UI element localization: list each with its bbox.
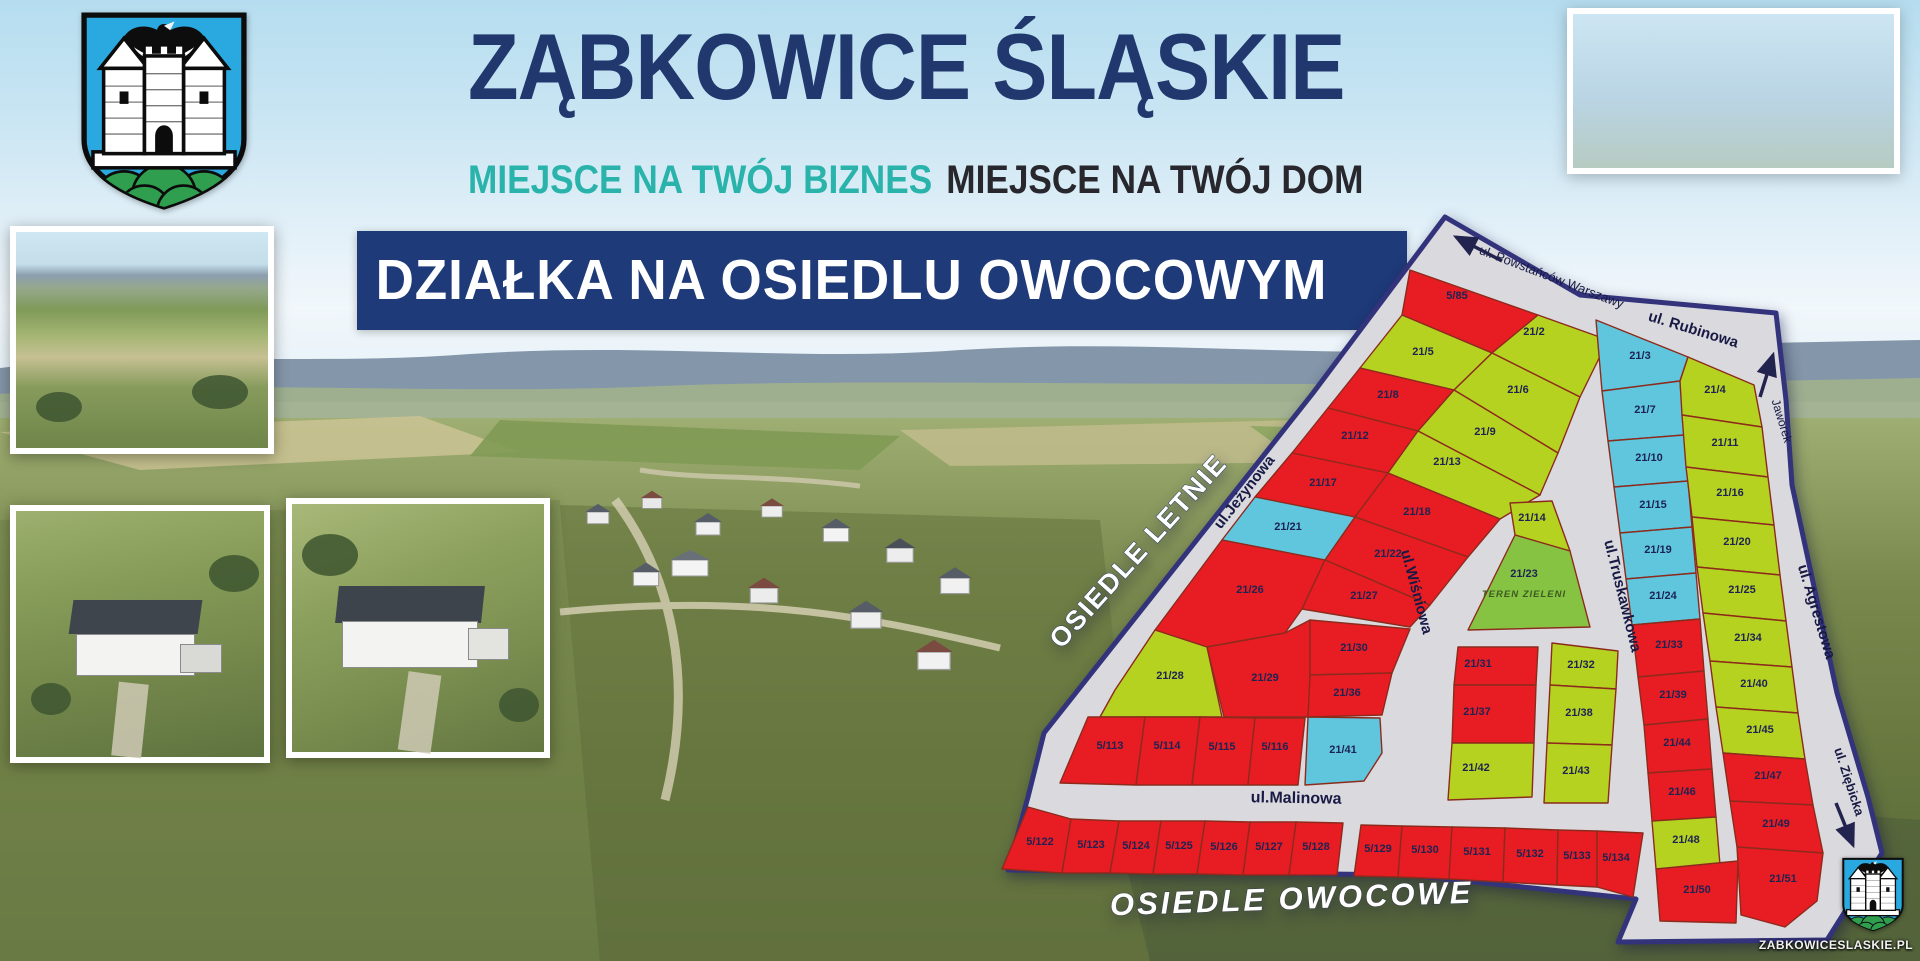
- plot-label-21/47: 21/47: [1754, 770, 1782, 782]
- plot-label-21/48: 21/48: [1672, 834, 1700, 846]
- plot-label-21/8: 21/8: [1377, 389, 1398, 401]
- plot-label-21/2: 21/2: [1523, 326, 1544, 338]
- plot-label-21/38: 21/38: [1565, 707, 1593, 719]
- plot-21/42: [1448, 743, 1534, 800]
- plot-label-21/51: 21/51: [1769, 873, 1797, 885]
- estate-area-label: OSIEDLE OWOCOWE: [1109, 875, 1474, 923]
- coat-of-arms: [75, 8, 253, 214]
- inset-photo-frame: [1567, 8, 1900, 174]
- plot-map: 5/8521/221/521/621/821/921/1221/1321/172…: [940, 185, 1920, 961]
- plot-label-5/122: 5/122: [1026, 836, 1054, 848]
- plot-label-21/36: 21/36: [1333, 687, 1361, 699]
- plot-label-21/24: 21/24: [1649, 590, 1677, 602]
- plot-label-21/6: 21/6: [1507, 384, 1528, 396]
- plot-label-5/125: 5/125: [1165, 840, 1193, 852]
- plot-label-21/40: 21/40: [1740, 678, 1768, 690]
- plot-label-5/124: 5/124: [1122, 840, 1150, 852]
- plot-label-21/9: 21/9: [1474, 426, 1495, 438]
- plot-label-21/20: 21/20: [1723, 536, 1751, 548]
- plot-label-5/113: 5/113: [1097, 740, 1124, 752]
- plot-label-21/3: 21/3: [1629, 350, 1650, 362]
- plot-label-21/41: 21/41: [1329, 744, 1357, 756]
- plot-label-21/37: 21/37: [1463, 706, 1491, 718]
- plot-label-5/130: 5/130: [1411, 844, 1439, 856]
- banner-poster: ZĄBKOWICE ŚLĄSKIE MIEJSCE NA TWÓJ BIZNES…: [0, 0, 1920, 961]
- plot-label-21/17: 21/17: [1309, 477, 1337, 489]
- plot-label-21/12: 21/12: [1341, 430, 1369, 442]
- green-area-label: TEREN ZIELENI: [1482, 589, 1566, 600]
- plot-label-21/29: 21/29: [1251, 672, 1279, 684]
- plot-label-21/14: 21/14: [1518, 512, 1546, 524]
- plot-label-5/129: 5/129: [1364, 843, 1392, 855]
- plot-label-21/25: 21/25: [1728, 584, 1756, 596]
- plot-label-21/23: 21/23: [1510, 568, 1538, 580]
- plot-label-5/115: 5/115: [1209, 741, 1236, 753]
- plot-label-21/49: 21/49: [1762, 818, 1790, 830]
- plot-label-5/114: 5/114: [1154, 740, 1182, 752]
- plot-label-5/134: 5/134: [1602, 852, 1630, 864]
- plot-label-21/30: 21/30: [1340, 642, 1368, 654]
- plot-label-21/4: 21/4: [1704, 384, 1726, 396]
- plot-label-21/33: 21/33: [1655, 639, 1683, 651]
- plot-label-21/28: 21/28: [1156, 670, 1184, 682]
- plot-label-21/42: 21/42: [1462, 762, 1490, 774]
- plot-label-21/44: 21/44: [1663, 737, 1691, 749]
- plot-label-21/5: 21/5: [1412, 346, 1433, 358]
- plot-label-5/133: 5/133: [1563, 850, 1591, 862]
- street-label: ul.Malinowa: [1251, 789, 1342, 808]
- coat-of-arms-small: [1840, 856, 1906, 933]
- plot-label-5/126: 5/126: [1210, 841, 1238, 853]
- plot-label-21/46: 21/46: [1668, 786, 1696, 798]
- plot-label-5/123: 5/123: [1077, 839, 1105, 851]
- plot-label-5/85: 5/85: [1446, 290, 1467, 302]
- plot-label-21/11: 21/11: [1712, 437, 1739, 449]
- inset-photo-panorama: [10, 226, 274, 454]
- plot-label-21/31: 21/31: [1464, 658, 1492, 670]
- plot-label-5/116: 5/116: [1262, 741, 1289, 753]
- page-title: ZĄBKOWICE ŚLĄSKIE: [468, 16, 1172, 118]
- plot-label-21/34: 21/34: [1734, 632, 1762, 644]
- inset-photo-house-2: [286, 498, 550, 758]
- inset-photo-house-1: [10, 505, 270, 763]
- plot-label-21/39: 21/39: [1659, 689, 1687, 701]
- subtitle-business: MIEJSCE NA TWÓJ BIZNES: [468, 158, 932, 202]
- plot-label-21/15: 21/15: [1639, 499, 1667, 511]
- plot-label-21/50: 21/50: [1683, 884, 1711, 896]
- plot-label-21/19: 21/19: [1644, 544, 1672, 556]
- plot-label-5/132: 5/132: [1516, 848, 1544, 860]
- plot-label-5/128: 5/128: [1302, 841, 1330, 853]
- plot-label-21/45: 21/45: [1746, 724, 1774, 736]
- plot-label-21/43: 21/43: [1562, 765, 1590, 777]
- plot-label-21/21: 21/21: [1274, 521, 1302, 533]
- website-url: ZABKOWICESLASKIE.PL: [1756, 938, 1916, 952]
- plot-label-21/26: 21/26: [1236, 584, 1264, 596]
- plot-label-21/13: 21/13: [1433, 456, 1461, 468]
- plot-label-5/127: 5/127: [1255, 841, 1283, 853]
- plot-label-21/18: 21/18: [1403, 506, 1431, 518]
- plot-label-21/7: 21/7: [1634, 404, 1655, 416]
- plot-label-5/131: 5/131: [1463, 846, 1491, 858]
- plot-label-21/32: 21/32: [1567, 659, 1595, 671]
- plot-label-21/16: 21/16: [1716, 487, 1744, 499]
- plot-label-21/27: 21/27: [1350, 590, 1378, 602]
- plot-label-21/10: 21/10: [1635, 452, 1663, 464]
